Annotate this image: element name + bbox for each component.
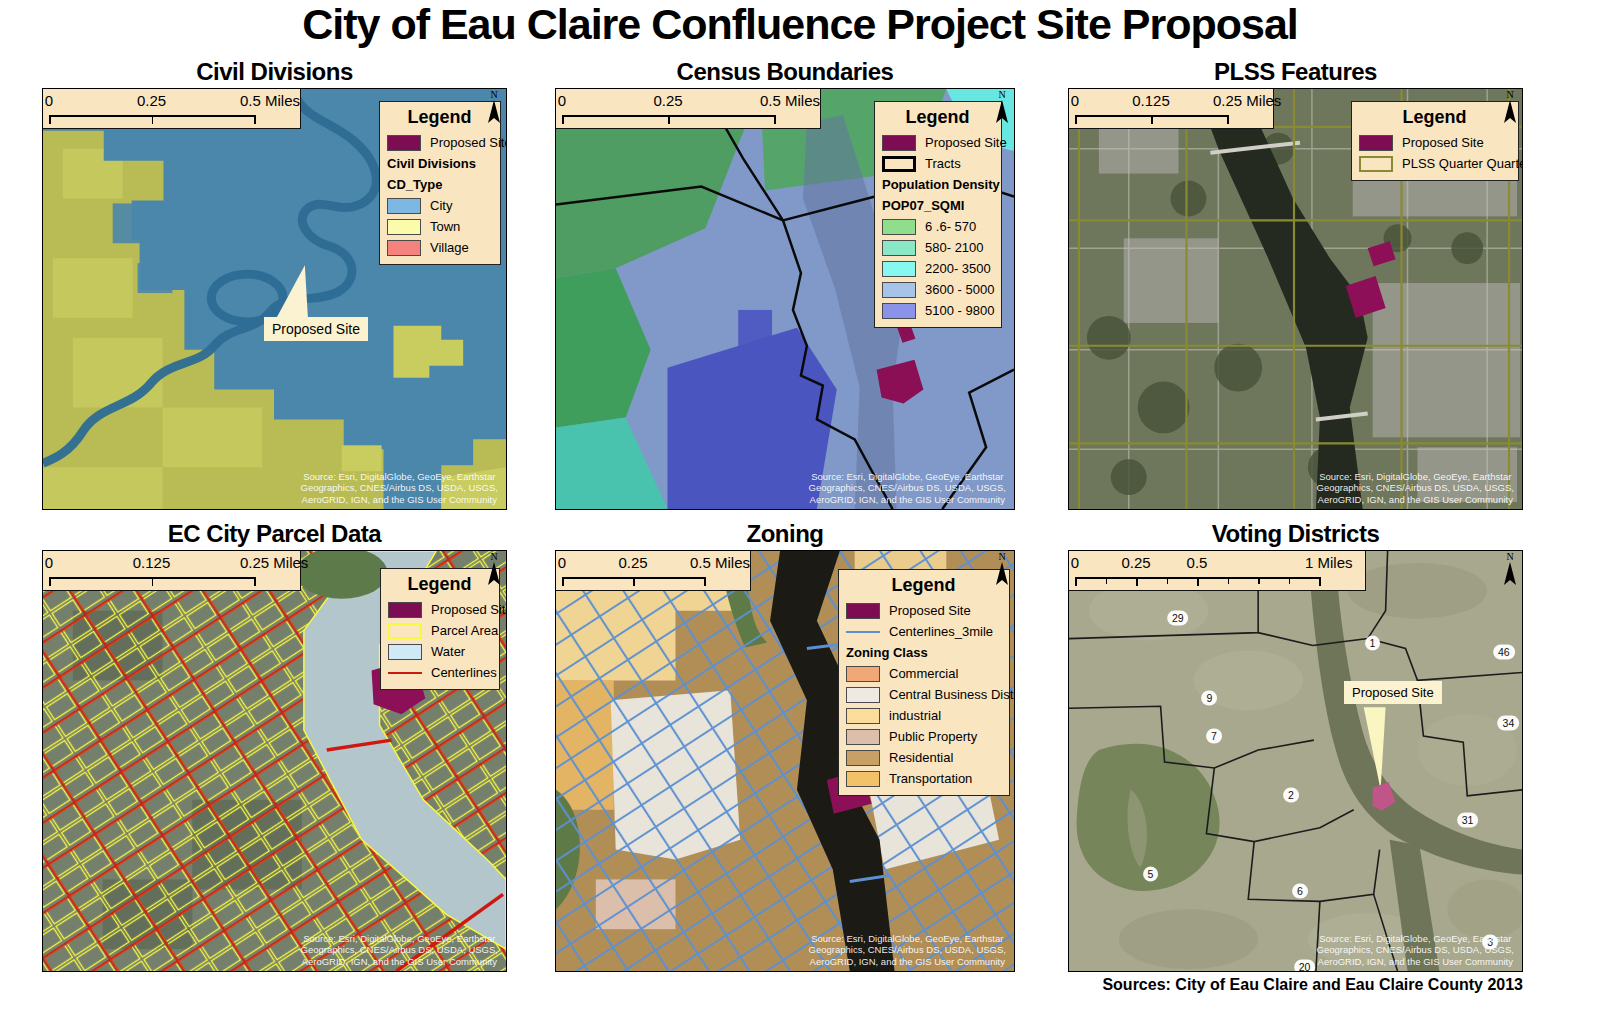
scalebar-label: 0.25 Miles [240, 554, 308, 571]
source-attribution-line: Geographics, CNES/Airbus DS, USDA, USGS, [301, 944, 498, 956]
legend-line-swatch [388, 672, 422, 675]
scalebar-tick [562, 577, 564, 586]
scalebar-tick [1167, 577, 1169, 584]
north-arrow-icon [486, 99, 502, 125]
source-attribution-line: Source: Esri, DigitalGlobe, GeoEye, Eart… [809, 471, 1006, 483]
panel-title: Voting Districts [1068, 520, 1523, 548]
zoning-map: 00.250.5 Miles LegendProposed SiteCenter… [555, 550, 1015, 972]
scalebar-tick [668, 115, 670, 124]
scale-bar: 00.250.5 Miles [43, 89, 301, 129]
legend-swatch [846, 771, 880, 787]
district-number-badge: 1 [1365, 636, 1381, 651]
legend-label: Transportation [889, 771, 972, 786]
source-attribution-line: Geographics, CNES/Airbus DS, USDA, USGS, [301, 482, 498, 494]
legend-label: 6 .6- 570 [925, 219, 976, 234]
panel-ec-city-parcel-data: EC City Parcel Data [42, 550, 507, 972]
north-arrow: N [485, 552, 503, 591]
source-attribution: Source: Esri, DigitalGlobe, GeoEye, Eart… [301, 471, 498, 506]
scalebar-label: 0.25 [137, 92, 166, 109]
legend-item: 580- 2100 [882, 237, 1001, 258]
legend-label: Proposed Site [431, 602, 507, 617]
legend-item: Residential [846, 747, 1009, 768]
scalebar-tick [1151, 115, 1153, 124]
legend-swatch [882, 303, 916, 319]
north-arrow-icon [1502, 99, 1518, 125]
proposed-site-callout: Proposed Site [1344, 681, 1442, 704]
north-label: N [485, 552, 503, 561]
legend-swatch [882, 240, 916, 256]
legend-item: industrial [846, 705, 1009, 726]
north-arrow: N [993, 90, 1011, 129]
district-number-badge: 7 [1206, 728, 1222, 743]
district-number-badge: 46 [1493, 644, 1515, 659]
legend-label: Village [430, 240, 469, 255]
north-arrow-icon [486, 561, 502, 587]
scalebar-tick [774, 115, 776, 124]
legend-label: 3600 - 5000 [925, 282, 994, 297]
source-attribution-line: Source: Esri, DigitalGlobe, GeoEye, Eart… [1317, 471, 1514, 483]
panel-title: Civil Divisions [42, 58, 507, 86]
scalebar-label: 1 Miles [1305, 554, 1353, 571]
page-title: City of Eau Claire Confluence Project Si… [0, 0, 1600, 49]
north-label: N [1501, 552, 1519, 561]
legend-title: Legend [882, 107, 993, 128]
legend-label: Proposed Site [925, 135, 1007, 150]
scalebar-tick [1075, 115, 1077, 124]
scalebar-tick [1075, 577, 1077, 586]
legend-item: Town [387, 216, 500, 237]
legend-label: Town [430, 219, 460, 234]
scalebar-tick [562, 115, 564, 124]
scalebar-tick [152, 577, 154, 586]
district-number-badge: 2 [1283, 787, 1299, 802]
source-attribution: Source: Esri, DigitalGlobe, GeoEye, Eart… [1317, 471, 1514, 506]
source-attribution-line: Geographics, CNES/Airbus DS, USDA, USGS, [809, 482, 1006, 494]
legend-swatch [882, 156, 916, 172]
voting-districts-map: 29146934723156320 00.250.51 Miles N Prop… [1068, 550, 1523, 972]
district-number-badge: 34 [1498, 716, 1520, 731]
legend-item: Population Density [882, 174, 1001, 195]
legend-label: PLSS Quarter Quarter [1402, 156, 1523, 171]
legend-swatch [388, 644, 422, 660]
legend-item: Proposed Site [882, 132, 1001, 153]
panel-title: Census Boundaries [555, 58, 1015, 86]
legend-label: City [430, 198, 452, 213]
north-arrow-icon [994, 561, 1010, 587]
legend-title: Legend [387, 107, 492, 128]
legend-item: Public Property [846, 726, 1009, 747]
scalebar-tick [254, 577, 256, 586]
legend-label: Civil Divisions [387, 156, 476, 171]
panel-title: Zoning [555, 520, 1015, 548]
legend-label: 580- 2100 [925, 240, 984, 255]
map-legend: LegendProposed SiteCivil DivisionsCD_Typ… [379, 101, 501, 265]
north-arrow-icon [1502, 561, 1518, 587]
source-attribution-line: Source: Esri, DigitalGlobe, GeoEye, Eart… [301, 933, 498, 945]
source-attribution-line: Source: Esri, DigitalGlobe, GeoEye, Eart… [809, 933, 1006, 945]
scalebar-label: 0.125 [1132, 92, 1170, 109]
source-attribution-line: AeroGRID, IGN, and the GIS User Communit… [1317, 956, 1514, 968]
legend-swatch [846, 603, 880, 619]
legend-swatch [882, 219, 916, 235]
scalebar-tick [49, 577, 51, 586]
legend-swatch [387, 240, 421, 256]
panel-title: EC City Parcel Data [42, 520, 507, 548]
legend-label: Central Business District [889, 687, 1015, 702]
source-attribution-line: Source: Esri, DigitalGlobe, GeoEye, Eart… [301, 471, 498, 483]
north-label: N [993, 552, 1011, 561]
legend-label: Proposed Site [889, 603, 971, 618]
scalebar-label: 0.25 [653, 92, 682, 109]
scalebar-tick [633, 577, 635, 586]
scalebar-tick [152, 115, 154, 124]
source-attribution-line: Geographics, CNES/Airbus DS, USDA, USGS, [809, 944, 1006, 956]
parcel-data-map: 00.1250.25 Miles LegendProposed SiteParc… [42, 550, 507, 972]
legend-label: 5100 - 9800 [925, 303, 994, 318]
scalebar-tick [1227, 115, 1229, 124]
scalebar-tick [1136, 577, 1138, 586]
legend-swatch [846, 687, 880, 703]
scalebar-label: 0 [1071, 92, 1079, 109]
north-arrow: N [485, 90, 503, 129]
source-attribution-line: Geographics, CNES/Airbus DS, USDA, USGS, [1317, 482, 1514, 494]
scalebar-label: 0.25 [618, 554, 647, 571]
legend-item: Parcel Area [388, 620, 499, 641]
map-legend: LegendProposed SiteTractsPopulation Dens… [874, 101, 1002, 328]
source-attribution: Source: Esri, DigitalGlobe, GeoEye, Eart… [301, 933, 498, 968]
scalebar-tick [1319, 577, 1321, 586]
legend-label: Population Density [882, 177, 1000, 192]
north-label: N [1501, 90, 1519, 99]
scale-bar: 00.1250.25 Miles [43, 551, 301, 591]
legend-swatch [387, 135, 421, 151]
legend-title: Legend [1359, 107, 1510, 128]
district-number-badge: 29 [1167, 611, 1189, 626]
scalebar-label: 0.5 [1187, 554, 1208, 571]
legend-item: Proposed Site [388, 599, 499, 620]
legend-item: 5100 - 9800 [882, 300, 1001, 321]
legend-line-swatch [846, 631, 880, 634]
legend-item: Centerlines_3mile [846, 621, 1009, 642]
legend-swatch [882, 135, 916, 151]
legend-swatch [846, 624, 880, 640]
panel-census-boundaries: Census Boundaries [555, 88, 1015, 510]
source-attribution-line: AeroGRID, IGN, and the GIS User Communit… [1317, 494, 1514, 506]
scalebar-tick [1228, 577, 1230, 584]
legend-label: Public Property [889, 729, 977, 744]
scalebar-label: 0.5 Miles [690, 554, 750, 571]
legend-item: CD_Type [387, 174, 500, 195]
sources-caption: Sources: City of Eau Claire and Eau Clai… [1068, 976, 1523, 994]
legend-item: Proposed Site [846, 600, 1009, 621]
map-legend: LegendProposed SitePLSS Quarter Quarter [1351, 101, 1519, 181]
scalebar-tick [254, 115, 256, 124]
scalebar-label: 0 [558, 92, 566, 109]
legend-swatch [882, 282, 916, 298]
scalebar-tick [1106, 577, 1108, 584]
legend-swatch [846, 750, 880, 766]
north-label: N [993, 90, 1011, 99]
district-number-badge: 5 [1143, 867, 1159, 882]
legend-item: PLSS Quarter Quarter [1359, 153, 1518, 174]
legend-title: Legend [388, 574, 491, 595]
map-legend: LegendProposed SiteParcel AreaWaterCente… [380, 568, 500, 690]
panel-zoning: Zoning [555, 550, 1015, 972]
scalebar-label: 0 [558, 554, 566, 571]
legend-swatch [387, 198, 421, 214]
source-attribution-line: AeroGRID, IGN, and the GIS User Communit… [809, 494, 1006, 506]
source-attribution: Source: Esri, DigitalGlobe, GeoEye, Eart… [809, 933, 1006, 968]
legend-label: Water [431, 644, 465, 659]
legend-item: Centerlines [388, 662, 499, 683]
legend-label: CD_Type [387, 177, 442, 192]
legend-item: Water [388, 641, 499, 662]
legend-swatch [846, 708, 880, 724]
north-label: N [485, 90, 503, 99]
scalebar-label: 0 [45, 92, 53, 109]
north-arrow: N [1501, 552, 1519, 591]
legend-label: Centerlines_3mile [889, 624, 993, 639]
district-number-overlay: 29146934723156320 [1069, 551, 1522, 971]
scalebar-tick [1289, 577, 1291, 584]
scale-bar: 00.1250.25 Miles [1069, 89, 1274, 129]
legend-swatch [388, 623, 422, 639]
scalebar-label: 0.5 Miles [760, 92, 820, 109]
scalebar-label: 0.5 Miles [240, 92, 300, 109]
legend-label: 2200- 3500 [925, 261, 991, 276]
census-boundaries-map: 00.250.5 Miles LegendProposed SiteTracts… [555, 88, 1015, 510]
legend-label: Zoning Class [846, 645, 928, 660]
source-attribution-line: Source: Esri, DigitalGlobe, GeoEye, Eart… [1317, 933, 1514, 945]
legend-swatch [388, 602, 422, 618]
source-attribution: Source: Esri, DigitalGlobe, GeoEye, Eart… [809, 471, 1006, 506]
source-attribution-line: Geographics, CNES/Airbus DS, USDA, USGS, [1317, 944, 1514, 956]
panel-civil-divisions: Civil Divisions 00.250.5 [42, 88, 507, 510]
legend-swatch [387, 219, 421, 235]
legend-item: Commercial [846, 663, 1009, 684]
map-legend: LegendProposed SiteCenterlines_3mileZoni… [838, 569, 1010, 796]
legend-swatch [1359, 135, 1393, 151]
legend-item: Tracts [882, 153, 1001, 174]
north-arrow-icon [994, 99, 1010, 125]
scalebar-label: 0 [1071, 554, 1079, 571]
plss-features-map: 00.1250.25 Miles LegendProposed SitePLSS… [1068, 88, 1523, 510]
legend-item: 6 .6- 570 [882, 216, 1001, 237]
district-number-badge: 31 [1457, 812, 1479, 827]
scalebar-label: 0.25 Miles [1213, 92, 1281, 109]
legend-label: Commercial [889, 666, 958, 681]
source-attribution: Source: Esri, DigitalGlobe, GeoEye, Eart… [1317, 933, 1514, 968]
scale-bar: 00.250.51 Miles [1069, 551, 1366, 591]
legend-swatch [882, 261, 916, 277]
legend-swatch [1359, 156, 1393, 172]
legend-label: Parcel Area [431, 623, 498, 638]
legend-item: POP07_SQMI [882, 195, 1001, 216]
legend-label: industrial [889, 708, 941, 723]
scale-bar: 00.250.5 Miles [556, 551, 751, 591]
legend-swatch [846, 729, 880, 745]
legend-label: Centerlines [431, 665, 497, 680]
scalebar-label: 0.125 [133, 554, 171, 571]
panel-voting-districts: Voting Districts [1068, 550, 1523, 972]
district-number-badge: 20 [1294, 959, 1316, 972]
legend-label: POP07_SQMI [882, 198, 964, 213]
north-arrow: N [993, 552, 1011, 591]
legend-item: City [387, 195, 500, 216]
source-attribution-line: AeroGRID, IGN, and the GIS User Communit… [809, 956, 1006, 968]
scalebar-label: 0 [45, 554, 53, 571]
proposed-site-callout: Proposed Site [264, 317, 368, 341]
legend-item: Proposed Site [1359, 132, 1518, 153]
panel-title: PLSS Features [1068, 58, 1523, 86]
legend-item: Zoning Class [846, 642, 1009, 663]
legend-item: Proposed Site [387, 132, 500, 153]
panel-plss-features: PLSS Features [1068, 88, 1523, 510]
scale-bar: 00.250.5 Miles [556, 89, 821, 129]
source-attribution-line: AeroGRID, IGN, and the GIS User Communit… [301, 494, 498, 506]
source-attribution-line: AeroGRID, IGN, and the GIS User Communit… [301, 956, 498, 968]
scalebar-tick [1197, 577, 1199, 586]
legend-label: Tracts [925, 156, 961, 171]
legend-swatch [846, 666, 880, 682]
legend-label: Residential [889, 750, 953, 765]
district-number-badge: 6 [1292, 884, 1308, 899]
north-arrow: N [1501, 90, 1519, 129]
civil-divisions-map: 00.250.5 Miles LegendProposed SiteCivil … [42, 88, 507, 510]
district-number-badge: 9 [1202, 691, 1218, 706]
legend-swatch [388, 665, 422, 681]
legend-label: Proposed Site [430, 135, 507, 150]
legend-item: Civil Divisions [387, 153, 500, 174]
scalebar-tick [49, 115, 51, 124]
legend-title: Legend [846, 575, 1001, 596]
scalebar-tick [1258, 577, 1260, 584]
legend-item: Central Business District [846, 684, 1009, 705]
legend-label: Proposed Site [1402, 135, 1484, 150]
scalebar-tick [704, 577, 706, 586]
legend-item: Transportation [846, 768, 1009, 789]
legend-item: 2200- 3500 [882, 258, 1001, 279]
scalebar-label: 0.25 [1121, 554, 1150, 571]
legend-item: 3600 - 5000 [882, 279, 1001, 300]
legend-item: Village [387, 237, 500, 258]
